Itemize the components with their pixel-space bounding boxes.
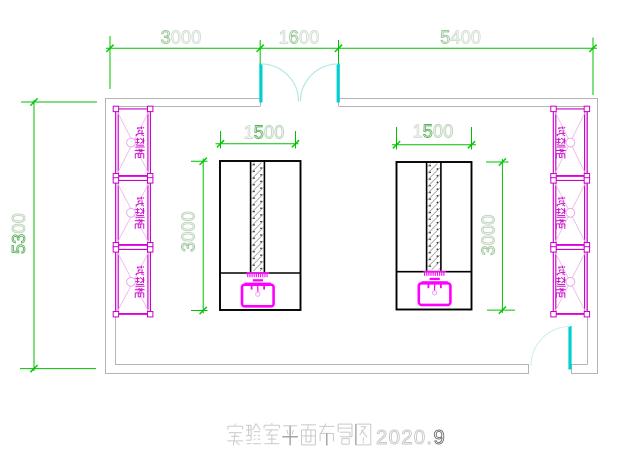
svg-text:3000: 3000 — [161, 28, 202, 48]
svg-text:3000: 3000 — [479, 215, 499, 256]
svg-text:5400: 5400 — [440, 28, 481, 48]
svg-text:3000: 3000 — [179, 211, 199, 252]
svg-text:1500: 1500 — [413, 122, 454, 142]
svg-text:1600: 1600 — [279, 28, 320, 48]
svg-text:2020.9: 2020.9 — [376, 426, 446, 449]
svg-text:1500: 1500 — [244, 122, 285, 142]
svg-text:5300: 5300 — [9, 213, 29, 254]
